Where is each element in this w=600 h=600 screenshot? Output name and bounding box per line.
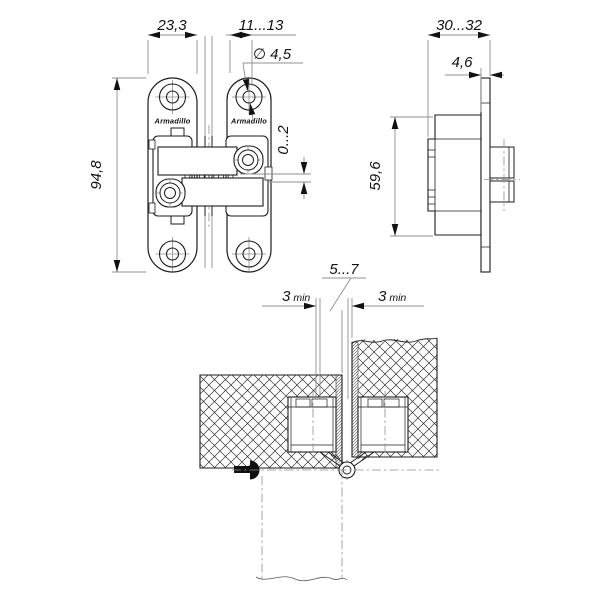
dim-gap: 5...7 [329, 261, 359, 278]
door-plate-section [336, 375, 342, 468]
dim-plate-pitch: 23,3 [156, 17, 187, 34]
frame-mortise-cavity [358, 397, 408, 452]
dim-plate-thickness: 4,6 [452, 54, 474, 71]
frame-plate-section [352, 342, 358, 457]
dim-overall-height: 94,8 [88, 160, 105, 190]
knuckle-side [490, 147, 514, 202]
dim-left-min-value: 3 [282, 288, 291, 305]
dim-body-height: 59,6 [367, 161, 384, 191]
dim-right-min-value: 3 [378, 288, 387, 305]
dim-left-min-unit: min [293, 292, 310, 304]
dim-edge-to-axis: 11...13 [239, 17, 284, 34]
mortise-body [428, 115, 481, 235]
dim-hole-diameter: ∅ 4,5 [253, 46, 292, 63]
flange-edge [481, 78, 490, 272]
dim-adjustment-range: 0...2 [275, 125, 292, 155]
hinge-technical-drawing: Armadillo Armadillo [0, 0, 600, 600]
dim-right-min-unit: min [389, 292, 406, 304]
brand-engraving-right: Armadillo [230, 117, 267, 126]
brand-engraving-left: Armadillo [154, 117, 191, 126]
dim-mortise-depth: 30...32 [436, 17, 483, 34]
